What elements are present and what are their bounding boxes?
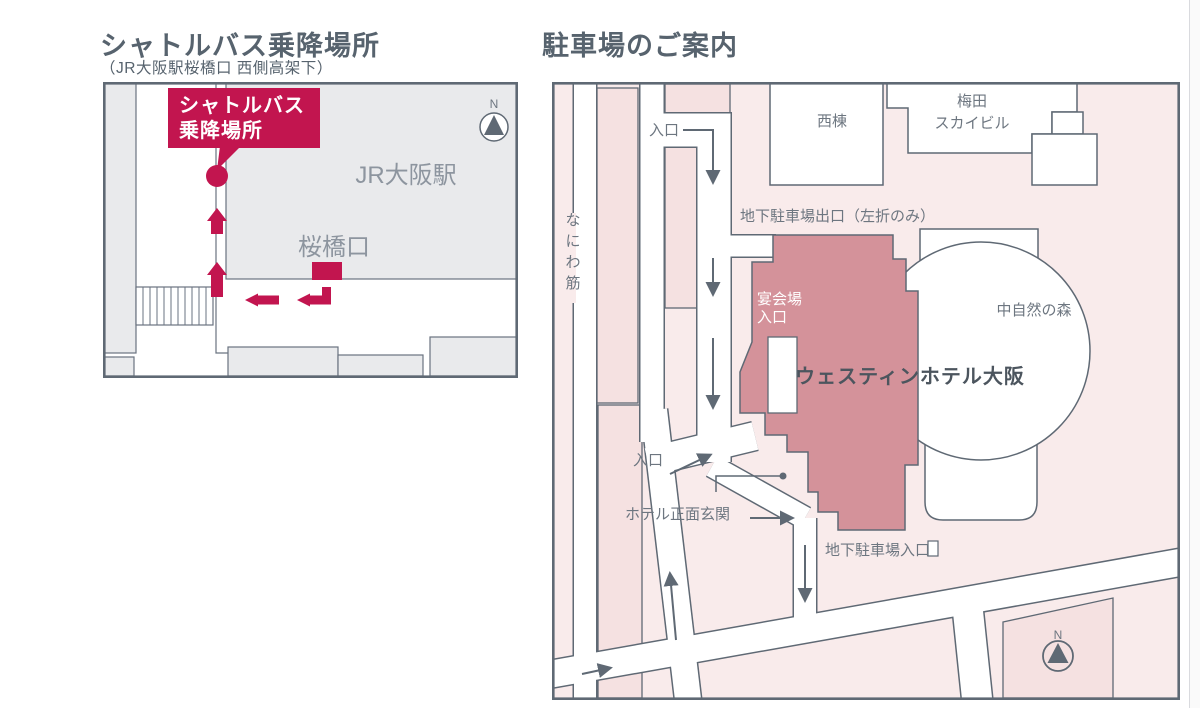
entrance-top-label: 入口	[649, 122, 679, 139]
callout-line1: シャトルバス	[179, 94, 305, 117]
page-edge	[1189, 0, 1200, 708]
stairs	[136, 287, 213, 325]
front-entrance-dot	[780, 473, 787, 480]
shuttle-map-subtitle: （JR大阪駅桜橋口 西側高架下）	[100, 56, 333, 78]
banquet-label-2: 入口	[757, 309, 787, 326]
entrance-front-label: 入口	[633, 452, 663, 469]
exit-door-marker	[312, 262, 342, 280]
hotel-label: ウェスティンホテル大阪	[795, 364, 1025, 388]
sakurabashi-exit-label: 桜橋口	[298, 234, 370, 261]
compass-n-label: N	[490, 97, 499, 111]
left-side-building	[103, 82, 136, 353]
forest-label: 中自然の森	[996, 302, 1071, 319]
block-4	[665, 84, 730, 113]
sky-building-label-1: 梅田	[957, 93, 987, 110]
front-entrance-label: ホテル正面玄関	[625, 506, 730, 523]
south-cross-road	[967, 602, 978, 700]
block-1	[597, 88, 638, 403]
banquet-label-1: 宴会場	[757, 290, 802, 308]
parking-map: なにわ筋 入口 地下駐車場出口（左折のみ） 西棟 梅田 スカイビル 中自然の森 …	[552, 82, 1180, 700]
bottom-building-1	[228, 347, 338, 376]
west-wing-label: 西棟	[817, 113, 847, 130]
garage-exit-label: 地下駐車場出口（左折のみ）	[740, 208, 935, 225]
parking-map-title: 駐車場のご案内	[542, 24, 738, 63]
west-wing-building	[770, 82, 883, 185]
bottom-building-3	[430, 337, 518, 376]
bottom-building-2	[338, 355, 423, 376]
station-label: JR大阪駅	[355, 162, 456, 189]
sky-building-label-2: スカイビル	[934, 115, 1009, 132]
block-3	[665, 145, 697, 308]
parking-guide-page: シャトルバス乗降場所 （JR大阪駅桜橋口 西側高架下） 駐車場のご案内 JR大阪…	[0, 0, 1200, 708]
compass-n-label: N	[1054, 628, 1063, 642]
callout-line2: 乗降場所	[179, 118, 263, 142]
bus-stop-marker	[206, 165, 228, 187]
sky-building-base	[1032, 134, 1097, 185]
garage-entrance-label: 地下駐車場入口	[825, 542, 930, 559]
sky-building-tower	[1052, 112, 1083, 134]
left-corner-building	[103, 357, 134, 376]
shuttle-bus-map: JR大阪駅 桜橋口 シャトルバス 乗降場所 N	[103, 82, 518, 378]
hotel-courtyard	[768, 337, 797, 413]
